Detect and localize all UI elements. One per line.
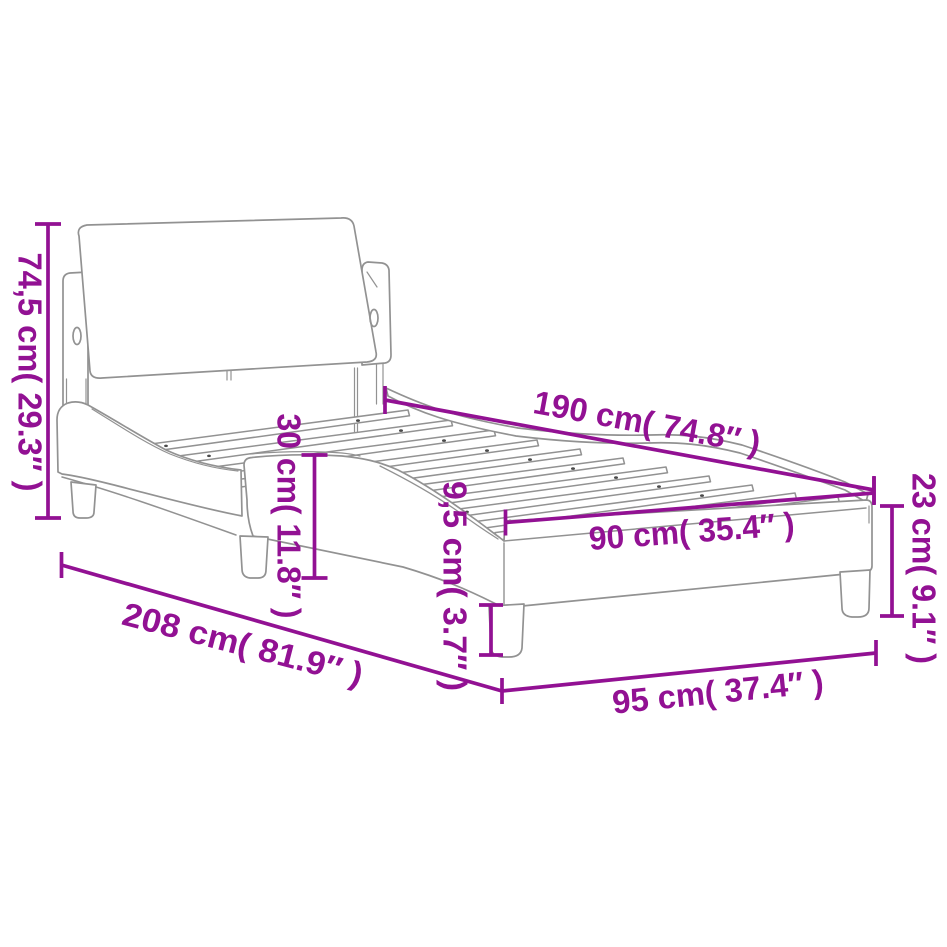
svg-text:9,5 cm( 3.7″ ): 9,5 cm( 3.7″ ) xyxy=(437,481,474,691)
svg-text:74,5 cm( 29.3″ ): 74,5 cm( 29.3″ ) xyxy=(12,253,49,492)
svg-text:23 cm( 9.1″ ): 23 cm( 9.1″ ) xyxy=(906,473,943,664)
svg-text:30 cm( 11.8″ ): 30 cm( 11.8″ ) xyxy=(271,414,308,619)
